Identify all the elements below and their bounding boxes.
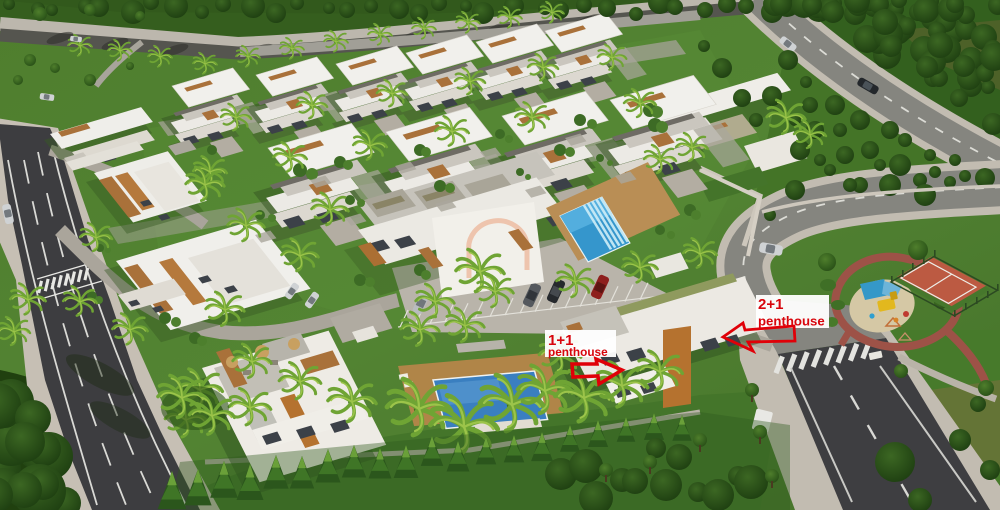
svg-text:2+1: 2+1 [758, 296, 783, 313]
svg-text:penthouse: penthouse [548, 345, 608, 359]
